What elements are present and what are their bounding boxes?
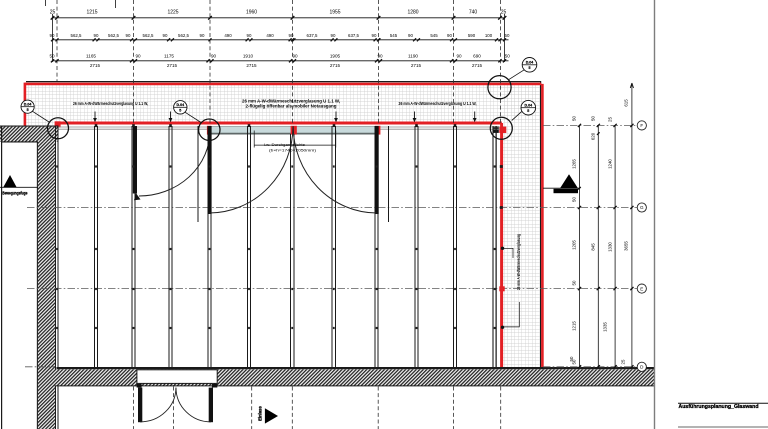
svg-text:25: 25 — [50, 10, 56, 16]
svg-text:1955: 1955 — [329, 10, 340, 16]
svg-text:490: 490 — [266, 33, 274, 38]
svg-text:50: 50 — [572, 197, 577, 202]
svg-text:90: 90 — [200, 33, 205, 38]
svg-text:(b×h=1740×2050mm): (b×h=1740×2050mm) — [269, 147, 317, 152]
svg-text:1215: 1215 — [86, 10, 97, 16]
svg-text:1175: 1175 — [164, 54, 174, 59]
svg-text:620: 620 — [591, 132, 596, 140]
svg-text:5: 5 — [27, 108, 29, 112]
svg-text:562,5: 562,5 — [71, 33, 83, 38]
svg-text:562,5: 562,5 — [143, 33, 155, 38]
svg-text:25: 25 — [607, 117, 612, 122]
svg-text:26 mm A-W-dWärmeschutzverglasu: 26 mm A-W-dWärmeschutzverglasung — [516, 234, 521, 290]
svg-text:845: 845 — [591, 243, 596, 251]
svg-text:90: 90 — [50, 33, 55, 38]
svg-text:Bewegungsfuge: Bewegungsfuge — [2, 191, 27, 196]
svg-text:100: 100 — [485, 33, 493, 38]
svg-text:1265: 1265 — [572, 159, 577, 169]
svg-text:D.04: D.04 — [525, 104, 533, 108]
svg-text:F: F — [640, 123, 643, 128]
svg-text:1280: 1280 — [407, 10, 418, 16]
svg-text:D.04: D.04 — [526, 61, 534, 65]
svg-text:90: 90 — [247, 33, 252, 38]
svg-text:545: 545 — [430, 33, 438, 38]
svg-text:50: 50 — [572, 116, 577, 121]
svg-text:1910: 1910 — [243, 54, 254, 59]
svg-text:590: 590 — [468, 33, 476, 38]
svg-text:1215: 1215 — [572, 321, 577, 331]
svg-text:25: 25 — [621, 359, 626, 364]
svg-text:490: 490 — [224, 33, 232, 38]
svg-text:1960: 1960 — [246, 10, 257, 16]
svg-text:90: 90 — [94, 33, 99, 38]
svg-text:1205: 1205 — [572, 240, 577, 250]
svg-text:637,5: 637,5 — [307, 33, 319, 38]
svg-text:545: 545 — [390, 33, 398, 38]
svg-text:50: 50 — [49, 54, 55, 59]
svg-text:26 mm A-W-dWärmeschutzverglasu: 26 mm A-W-dWärmeschutzverglasung U 1.1 W… — [399, 101, 477, 106]
svg-text:90: 90 — [126, 33, 131, 38]
svg-text:2715: 2715 — [411, 63, 422, 68]
svg-text:90: 90 — [456, 54, 462, 59]
svg-text:5: 5 — [179, 109, 181, 113]
svg-text:1225: 1225 — [167, 10, 178, 16]
svg-text:Ausführungsplanung_Glaswand: Ausführungsplanung_Glaswand — [679, 404, 760, 410]
svg-text:25: 25 — [501, 10, 507, 16]
svg-text:1905: 1905 — [330, 54, 341, 59]
svg-text:90: 90 — [377, 54, 383, 59]
svg-text:50: 50 — [569, 356, 574, 361]
svg-text:1335: 1335 — [603, 322, 608, 332]
svg-text:D.04: D.04 — [177, 103, 185, 107]
svg-text:2715: 2715 — [246, 63, 257, 68]
svg-text:50: 50 — [505, 33, 510, 38]
svg-text:90: 90 — [211, 54, 217, 59]
svg-text:50: 50 — [572, 280, 577, 285]
svg-text:E: E — [640, 286, 643, 291]
svg-text:50: 50 — [591, 116, 596, 121]
svg-text:90: 90 — [163, 33, 168, 38]
svg-text:90: 90 — [331, 33, 336, 38]
svg-text:740: 740 — [469, 10, 478, 16]
svg-text:637,5: 637,5 — [348, 33, 360, 38]
svg-text:2715: 2715 — [90, 63, 101, 68]
svg-text:26 mm A-W-dWärmeschutzverglasu: 26 mm A-W-dWärmeschutzverglasung U 1.1 W… — [73, 101, 148, 106]
svg-text:1240: 1240 — [607, 159, 612, 169]
svg-text:3655: 3655 — [624, 241, 629, 251]
svg-text:90: 90 — [447, 33, 452, 38]
svg-text:1330: 1330 — [607, 242, 612, 252]
svg-text:2715: 2715 — [472, 63, 483, 68]
svg-text:2715: 2715 — [330, 63, 341, 68]
svg-text:90: 90 — [289, 33, 294, 38]
svg-text:562,5: 562,5 — [108, 33, 120, 38]
svg-text:5: 5 — [527, 109, 529, 113]
svg-text:2715: 2715 — [167, 63, 178, 68]
svg-text:G: G — [640, 205, 644, 210]
svg-text:90: 90 — [135, 54, 141, 59]
svg-text:90: 90 — [408, 33, 413, 38]
svg-text:562,5: 562,5 — [178, 33, 190, 38]
svg-text:5: 5 — [529, 66, 531, 70]
svg-text:1190: 1190 — [408, 54, 418, 59]
svg-text:50: 50 — [505, 54, 511, 59]
svg-text:90: 90 — [372, 33, 377, 38]
svg-text:1165: 1165 — [86, 54, 96, 59]
svg-text:90: 90 — [292, 54, 298, 59]
svg-text:2-flügelig öffenbar als mobile: 2-flügelig öffenbar als mobiler Notausga… — [246, 104, 338, 109]
svg-text:D.04: D.04 — [24, 103, 32, 107]
svg-text:615: 615 — [624, 99, 629, 107]
svg-text:Einlass: Einlass — [258, 406, 263, 421]
svg-text:690: 690 — [473, 54, 481, 59]
